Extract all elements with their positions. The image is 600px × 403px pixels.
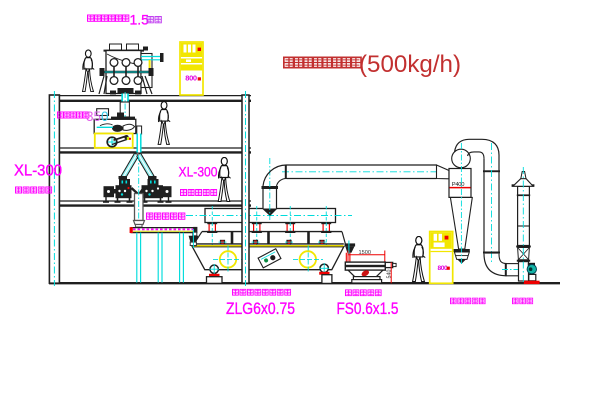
svg-text:800: 800 [185,74,197,83]
svg-text:540: 540 [387,270,393,279]
svg-text:350: 350 [86,109,109,124]
svg-text:1500: 1500 [359,250,371,256]
svg-text:XL-300: XL-300 [179,164,218,180]
svg-text:XL-300: XL-300 [14,163,62,180]
svg-text:FS0.6x1.5: FS0.6x1.5 [337,300,399,318]
svg-text:(500kg/h): (500kg/h) [359,51,461,78]
svg-text:800: 800 [438,265,449,272]
svg-text:ZLG6x0.75: ZLG6x0.75 [226,300,295,318]
svg-text:1.5: 1.5 [130,12,150,28]
